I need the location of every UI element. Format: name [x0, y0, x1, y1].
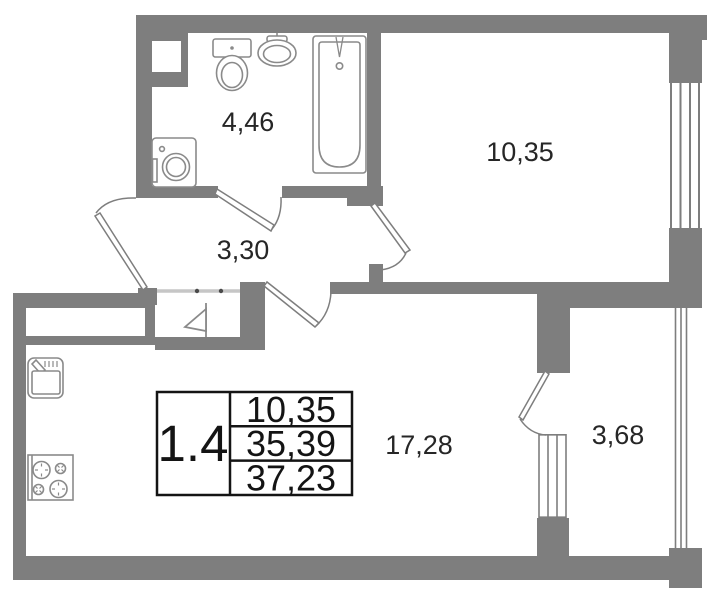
- entrance-door-icon: [185, 303, 206, 337]
- toilet-icon: [213, 39, 251, 91]
- info-table-value-total: 37,23: [246, 458, 336, 499]
- wall-bottom: [13, 556, 702, 580]
- wall-entrance-right-column: [240, 282, 265, 345]
- wall-balcony-divider-column: [537, 294, 570, 373]
- hallway-door-arc: [96, 198, 136, 213]
- balcony-window: [539, 434, 566, 518]
- vent-shaft-hole: [152, 41, 181, 72]
- washing-machine-icon: [152, 138, 196, 187]
- bedroom-door-arc: [380, 253, 406, 270]
- stove-icon: [28, 455, 73, 500]
- room-label-hallway: 3,30: [217, 235, 270, 265]
- bathroom-door-leaf: [215, 189, 274, 231]
- room-label-kitchen-living: 17,28: [385, 430, 453, 460]
- sink-icon: [258, 33, 296, 66]
- wall-mid-left: [330, 282, 537, 294]
- balcony-glazing: [676, 308, 687, 556]
- wall-bottom-right-block: [669, 548, 702, 588]
- entrance: [157, 289, 240, 337]
- hallway-door-leaf: [95, 213, 147, 290]
- bedroom-door-leaf: [371, 203, 410, 253]
- balcony-door-leaf: [519, 371, 549, 420]
- balcony-door-arc: [520, 419, 546, 435]
- threshold-dot-left: [195, 289, 199, 293]
- room-label-bathroom: 4,46: [222, 107, 275, 137]
- info-table: 1.4 10,35 35,39 37,23: [157, 389, 352, 499]
- wall-corner-block: [347, 186, 383, 206]
- wall-bathroom-bottom-left: [136, 186, 218, 198]
- wall-right-pier-top: [669, 33, 702, 83]
- wall-entrance-left-nub: [138, 288, 157, 305]
- left-block-inset: [26, 308, 145, 336]
- living-room-door-leaf: [264, 282, 319, 327]
- bathtub-icon: [313, 36, 366, 173]
- wall-top: [136, 15, 707, 33]
- kitchen-sink-icon: [28, 358, 63, 398]
- wall-balcony-window-bottom-block: [537, 518, 569, 556]
- threshold-dot-right: [219, 289, 223, 293]
- wall-right-pier-mid: [669, 228, 702, 308]
- wall-bathroom-left: [136, 33, 152, 198]
- apartment-number: 1.4: [158, 415, 229, 472]
- floor-plan: 4,46 10,35 3,30 17,28 3,68 1.4 10,35 35,…: [0, 0, 720, 600]
- living-room-door-arc: [316, 292, 331, 326]
- floor-plan-canvas: 4,46 10,35 3,30 17,28 3,68 1.4 10,35 35,…: [0, 0, 720, 600]
- wall-left: [13, 293, 26, 580]
- bedroom-door-bottom-nub: [369, 264, 383, 282]
- wall-entrance-bottom: [155, 337, 265, 350]
- wall-bathroom-bedroom: [367, 33, 381, 186]
- room-label-balcony: 3,68: [592, 420, 645, 450]
- room-label-bedroom: 10,35: [486, 137, 554, 167]
- bedroom-window: [671, 83, 699, 228]
